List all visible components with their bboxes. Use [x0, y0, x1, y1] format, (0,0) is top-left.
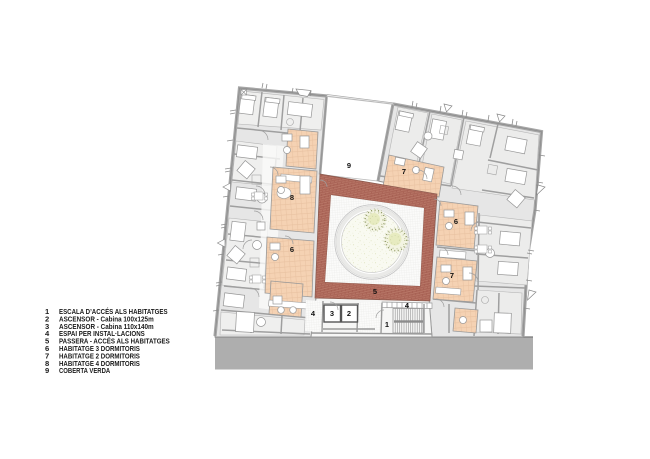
svg-text:6: 6 — [454, 217, 458, 226]
svg-text:7: 7 — [402, 167, 406, 176]
svg-text:2: 2 — [347, 309, 351, 318]
svg-text:9: 9 — [45, 366, 49, 375]
svg-text:3: 3 — [330, 309, 334, 318]
svg-text:6: 6 — [290, 245, 294, 254]
svg-text:8: 8 — [290, 193, 294, 202]
svg-text:9: 9 — [347, 161, 351, 170]
svg-text:5: 5 — [373, 287, 377, 296]
svg-text:7: 7 — [450, 271, 454, 280]
svg-text:1: 1 — [385, 320, 389, 329]
svg-text:COBERTA VERDA: COBERTA VERDA — [59, 366, 111, 375]
